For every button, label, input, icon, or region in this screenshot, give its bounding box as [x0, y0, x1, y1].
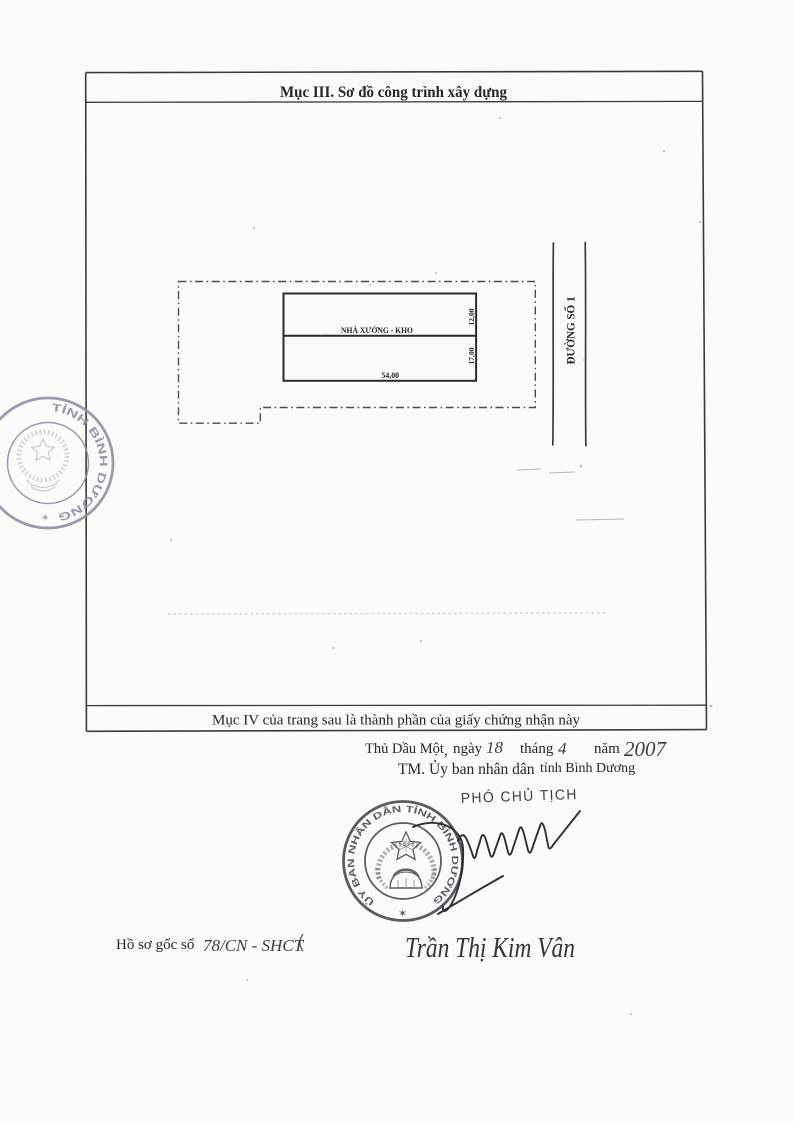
svg-text:17,00: 17,00: [467, 347, 476, 364]
svg-text:tỉnh Bình Dương: tỉnh Bình Dương: [540, 761, 635, 776]
svg-text:năm: năm: [594, 741, 620, 757]
svg-text:Hồ sơ gốc số: Hồ sơ gốc số: [116, 937, 195, 953]
svg-text:✶: ✶: [398, 908, 407, 920]
svg-text:ngày: ngày: [453, 741, 483, 757]
svg-text:18: 18: [486, 738, 504, 757]
svg-text:54,00: 54,00: [382, 370, 400, 380]
svg-text:tháng: tháng: [520, 741, 554, 757]
svg-text:TM. Ủy ban nhân dân: TM. Ủy ban nhân dân: [398, 761, 535, 778]
svg-text:Trần Thị Kim Vân: Trần Thị Kim Vân: [405, 933, 575, 964]
svg-text:,: ,: [444, 743, 448, 759]
svg-text:4: 4: [558, 739, 567, 758]
svg-text:2007: 2007: [624, 737, 668, 761]
svg-text:✶: ✶: [41, 513, 49, 524]
svg-text:TỈNH BÌNH DƯƠNG: TỈNH BÌNH DƯƠNG: [51, 402, 109, 523]
svg-text:NHÀ XƯỞNG - KHO: NHÀ XƯỞNG - KHO: [341, 325, 413, 335]
svg-text:PHÓ CHỦ TỊCH: PHÓ CHỦ TỊCH: [461, 785, 579, 807]
svg-text:Thủ Dầu Một: Thủ Dầu Một: [365, 741, 444, 757]
svg-text:12,00: 12,00: [467, 308, 476, 325]
svg-text:Mục III. Sơ đồ công trình xây: Mục III. Sơ đồ công trình xây dựng: [280, 84, 507, 101]
svg-text:78/CN - SHCT: 78/CN - SHCT: [203, 936, 305, 955]
svg-text:ĐƯỜNG SỐ 1: ĐƯỜNG SỐ 1: [563, 296, 578, 364]
svg-text:Mục IV của trang sau là thành: Mục IV của trang sau là thành phần của g…: [212, 713, 581, 729]
